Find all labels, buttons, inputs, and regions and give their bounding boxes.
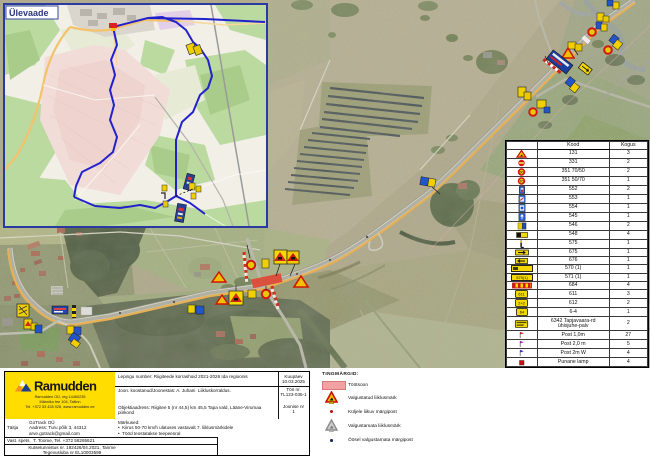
svg-text:64: 64 — [520, 310, 525, 315]
svg-text:Ülevaade: Ülevaade — [9, 8, 49, 18]
svg-text:611: 611 — [519, 292, 526, 297]
svg-text:70: 70 — [520, 178, 525, 183]
svg-text:Ramudden: Ramudden — [34, 379, 97, 393]
svg-text:50: 50 — [520, 169, 525, 174]
svg-text:2+2: 2+2 — [518, 301, 526, 306]
svg-text:575(1): 575(1) — [516, 275, 528, 280]
